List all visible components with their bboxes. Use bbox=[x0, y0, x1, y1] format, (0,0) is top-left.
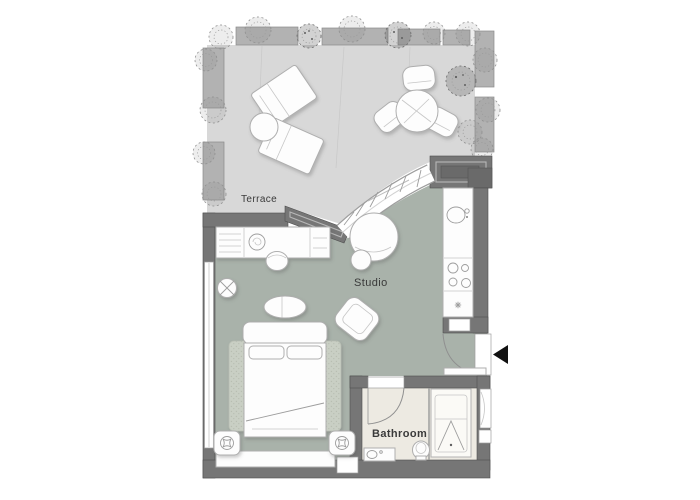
tree-icon bbox=[245, 17, 271, 43]
bed-headboard-bench bbox=[243, 322, 327, 344]
bed-pillow bbox=[249, 346, 284, 359]
tree-icon bbox=[385, 22, 411, 48]
bathroom-door-threshold bbox=[368, 377, 404, 388]
dining-chair bbox=[402, 64, 436, 91]
tree-icon bbox=[476, 98, 500, 122]
tree-icon bbox=[446, 66, 476, 96]
bathroom-wall-niche bbox=[480, 389, 491, 428]
appliance-fan-symbol bbox=[455, 302, 461, 308]
bathroom-label: Bathroom bbox=[372, 428, 427, 440]
kitchen-end-cabinet bbox=[449, 319, 470, 331]
bathtub bbox=[431, 389, 471, 457]
bed-pillow bbox=[287, 346, 322, 359]
tree-icon bbox=[209, 25, 233, 49]
kitchen bbox=[443, 188, 473, 317]
tree-icon bbox=[456, 22, 480, 46]
tree-icon bbox=[202, 182, 226, 206]
entry-arrow-icon bbox=[493, 345, 508, 364]
floor-plan: Terrace Studio Bathroom bbox=[0, 0, 700, 500]
bed-group bbox=[214, 322, 355, 455]
tree-icon bbox=[473, 48, 497, 72]
wall-niche-box bbox=[337, 457, 358, 473]
studio-label: Studio bbox=[354, 277, 388, 289]
ottoman bbox=[351, 250, 371, 270]
bathroom-wall-niche-small bbox=[479, 430, 491, 443]
nightstand bbox=[329, 431, 355, 455]
tree-icon bbox=[339, 16, 365, 42]
tree-icon bbox=[297, 24, 321, 48]
coffee-table bbox=[264, 296, 306, 318]
desk-chair bbox=[266, 252, 288, 271]
tree-icon bbox=[423, 22, 445, 44]
side-table bbox=[250, 113, 278, 141]
terrace-label: Terrace bbox=[241, 194, 277, 205]
bathroom-vanity-sink bbox=[364, 448, 395, 461]
floor-plant-pot bbox=[218, 279, 237, 298]
nightstand bbox=[214, 431, 240, 455]
tree-icon bbox=[200, 97, 226, 123]
tree-icon bbox=[193, 142, 215, 164]
entry-door-leaf bbox=[444, 368, 486, 375]
tree-icon bbox=[195, 49, 217, 71]
tree-icon bbox=[458, 120, 482, 144]
